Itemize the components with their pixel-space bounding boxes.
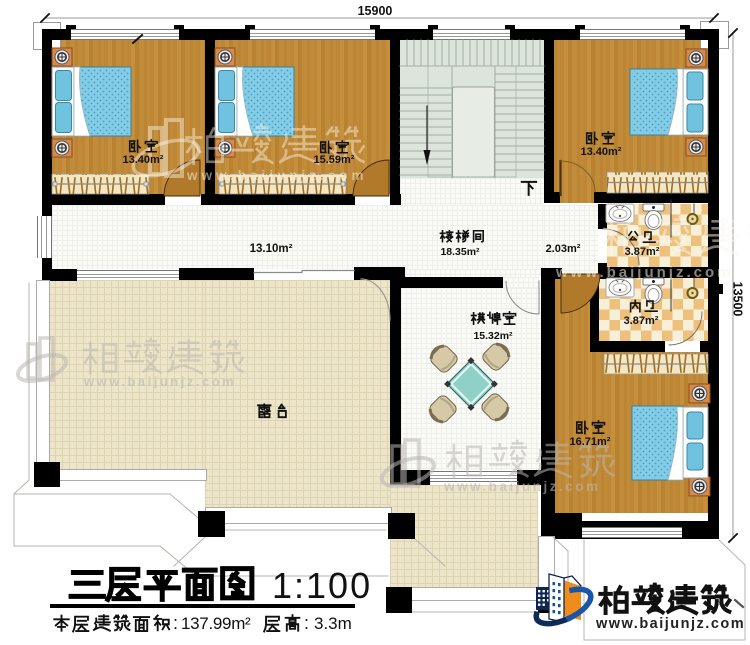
svg-text:13.10m²: 13.10m² <box>250 243 293 255</box>
svg-text:137.99m²: 137.99m² <box>181 614 251 633</box>
svg-text::: : <box>304 613 309 633</box>
svg-text:13.40m²: 13.40m² <box>581 146 622 158</box>
svg-text:13.40m²: 13.40m² <box>123 154 164 166</box>
svg-text:13500: 13500 <box>731 282 745 317</box>
svg-text:www.baijunjz.com: www.baijunjz.com <box>186 168 368 183</box>
svg-text:18.35m²: 18.35m² <box>440 246 480 258</box>
svg-text:15900: 15900 <box>358 4 393 18</box>
svg-text:16.71m²: 16.71m² <box>570 436 611 448</box>
svg-text:3.87m²: 3.87m² <box>625 246 660 258</box>
svg-text::: : <box>173 613 178 633</box>
svg-text:15.59m²: 15.59m² <box>314 154 355 166</box>
svg-text:15.32m²: 15.32m² <box>473 330 513 342</box>
svg-text:www.baijunjz.com: www.baijunjz.com <box>555 264 733 281</box>
svg-text:1:100: 1:100 <box>272 565 372 606</box>
svg-text:www.baijunjz.com: www.baijunjz.com <box>83 374 236 389</box>
svg-text:2.03m²: 2.03m² <box>546 243 581 255</box>
svg-text:3.3m: 3.3m <box>314 614 352 633</box>
svg-text:3.87m²: 3.87m² <box>624 315 659 327</box>
svg-text:www.baijunjz.com: www.baijunjz.com <box>595 616 745 632</box>
svg-text:www.baijunjz.com: www.baijunjz.com <box>443 479 601 494</box>
